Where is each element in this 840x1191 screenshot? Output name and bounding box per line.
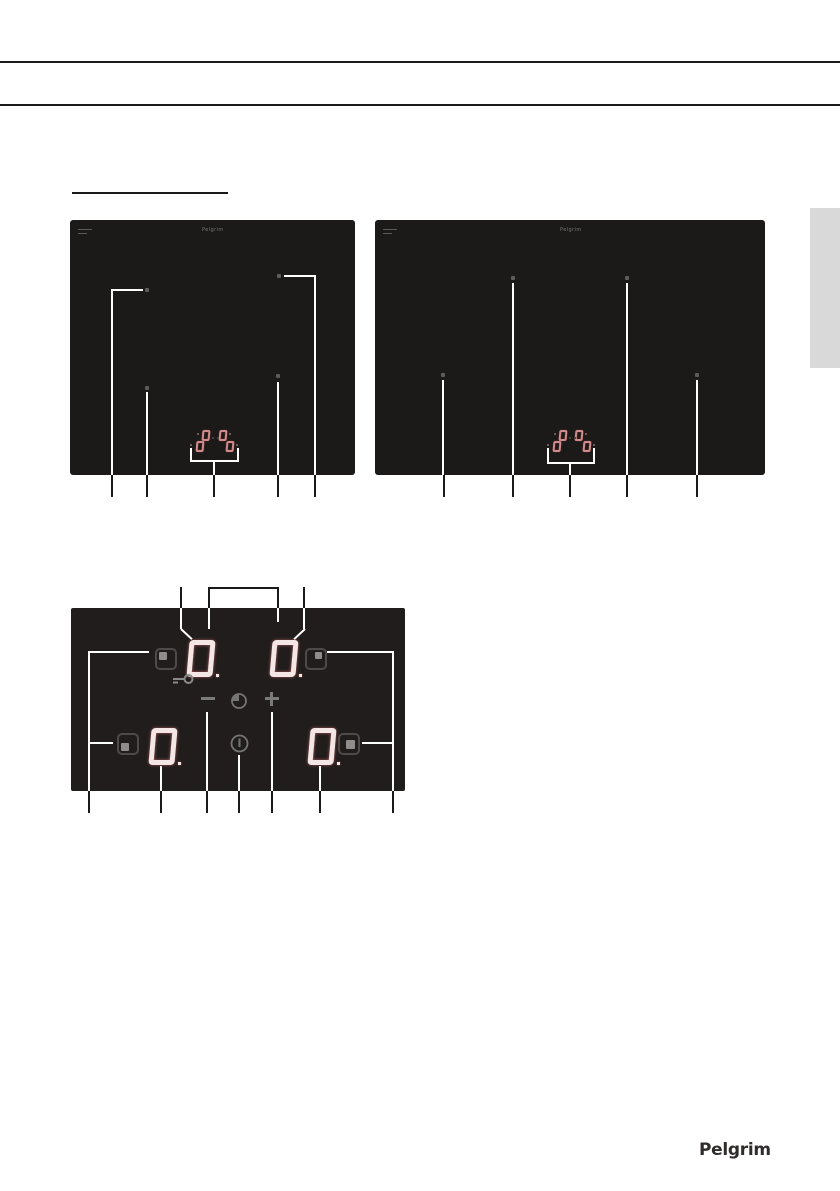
callout-line (327, 651, 394, 653)
callout-bracket (208, 587, 279, 589)
callout-bracket (277, 587, 279, 608)
digit-value: 0 (204, 432, 205, 433)
brand-logo: Pelgrim (699, 1140, 771, 1160)
callout-line (277, 382, 279, 475)
callout-bracket (213, 460, 215, 475)
model-label-mark (78, 229, 92, 230)
digit-value: 0 (221, 432, 222, 433)
callout-line (314, 275, 316, 475)
callout-bracket (593, 448, 595, 462)
callout-line (392, 791, 394, 813)
display-back-right: 0 (269, 640, 298, 677)
mini-display-digit: 0 (196, 441, 205, 452)
hob-figure-right: Pelgrim 0 0 0 0 (375, 220, 765, 475)
zone-position-square (346, 740, 355, 749)
decimal-point (216, 674, 219, 677)
callout-line (238, 791, 240, 813)
callout-line (443, 475, 445, 497)
callout-bracket (547, 448, 549, 462)
callout-line (160, 766, 162, 791)
zone-marker-dot (145, 386, 149, 390)
callout-line (206, 791, 208, 813)
mini-display-mark (212, 437, 214, 439)
zone-marker-dot (277, 274, 281, 278)
mini-display-mark (585, 433, 587, 435)
zone-select-back-left-key-icon (155, 648, 177, 670)
hob-figure-left: Pelgrim 0 0 0 0 (70, 220, 355, 475)
callout-line (277, 475, 279, 497)
callout-bracket (208, 608, 210, 629)
mini-display-mark (229, 433, 231, 435)
decimal-point (299, 674, 302, 677)
mini-display-mark (574, 437, 576, 439)
callout-line (111, 289, 113, 475)
callout-line (512, 283, 514, 475)
control-panel-figure: 0 0 0 0 (71, 608, 405, 791)
callout-line (180, 587, 182, 608)
callout-line (206, 712, 208, 791)
digit-value: 0 (228, 443, 229, 444)
child-lock-key-icon (171, 672, 195, 686)
mini-display-mark (217, 437, 219, 439)
hob-brand-text: Pelgrim (202, 227, 224, 233)
digit-value: 0 (555, 443, 556, 444)
callout-line (293, 628, 305, 640)
zone-select-front-right-key-icon (338, 733, 360, 755)
callout-line (314, 475, 316, 497)
manual-page: { "colors": { "rule": "#1a1a1a", "callou… (0, 0, 840, 1191)
model-label-mark (78, 233, 87, 234)
callout-line (146, 475, 148, 497)
callout-line (213, 475, 215, 497)
callout-line (569, 475, 571, 497)
zone-marker-dot (441, 373, 445, 377)
callout-line (111, 289, 143, 291)
callout-line (319, 766, 321, 791)
mini-display-digit: 0 (219, 430, 228, 441)
callout-bracket (569, 462, 571, 475)
mini-display-digit: 0 (553, 441, 562, 452)
zone-position-square (121, 743, 129, 751)
mini-display-mark (236, 444, 238, 446)
callout-line (626, 475, 628, 497)
callout-line (88, 742, 113, 744)
timer-key-icon (230, 692, 248, 710)
callout-line (88, 651, 90, 791)
callout-line (319, 791, 321, 813)
callout-line (303, 608, 305, 629)
callout-line (180, 608, 182, 629)
power-key-icon (230, 734, 249, 753)
callout-line (696, 380, 698, 475)
callout-line (146, 392, 148, 475)
page-edge-tab (810, 208, 840, 368)
decimal-point (178, 762, 181, 765)
mini-display-digit: 0 (575, 430, 584, 441)
mini-display-digit: 0 (226, 441, 235, 452)
model-label-mark (383, 229, 397, 230)
callout-line (111, 475, 113, 497)
callout-bracket (208, 587, 210, 608)
plus-key-icon (270, 692, 273, 706)
digit-value: 0 (585, 443, 586, 444)
callout-line (303, 587, 305, 608)
callout-line (180, 628, 192, 640)
mini-display-digit: 0 (559, 430, 568, 441)
zone-select-front-left-key-icon (117, 733, 139, 755)
callout-line (626, 283, 628, 475)
display-front-left: 0 (148, 728, 177, 765)
digit-value: 0 (194, 645, 195, 646)
zone-marker-dot (625, 276, 629, 280)
callout-line (362, 742, 394, 744)
callout-bracket (277, 608, 279, 622)
callout-line (238, 755, 240, 791)
mini-display-mark (197, 433, 199, 435)
digit-value: 0 (156, 733, 157, 734)
zone-select-back-right-key-icon (305, 648, 327, 670)
callout-line (160, 791, 162, 813)
digit-value: 0 (577, 432, 578, 433)
callout-line (512, 475, 514, 497)
callout-line (88, 651, 149, 653)
decimal-point (337, 762, 340, 765)
header-rule-bottom (0, 104, 840, 106)
mini-display-digit: 0 (202, 430, 211, 441)
zone-marker-dot (511, 276, 515, 280)
zone-position-square (159, 652, 167, 660)
digit-value: 0 (561, 432, 562, 433)
mini-display-mark (569, 437, 571, 439)
zone-marker-dot (695, 373, 699, 377)
digit-value: 0 (315, 733, 316, 734)
callout-line (392, 651, 394, 791)
callout-line (696, 475, 698, 497)
mini-display-mark (190, 444, 192, 446)
callout-line (88, 791, 90, 813)
hob-brand-text: Pelgrim (560, 227, 582, 233)
digit-value: 0 (198, 443, 199, 444)
mini-display-mark (554, 433, 556, 435)
minus-key-icon (201, 697, 215, 700)
header-rule-top (0, 61, 840, 63)
section-heading-underline (72, 192, 228, 194)
callout-bracket (547, 462, 595, 464)
mini-display-digit: 0 (583, 441, 592, 452)
callout-line (271, 791, 273, 813)
digit-value: 0 (277, 645, 278, 646)
mini-display-mark (547, 444, 549, 446)
zone-position-square (315, 652, 322, 659)
mini-display-mark (593, 444, 595, 446)
display-front-right: 0 (307, 728, 336, 765)
zone-marker-dot (145, 288, 149, 292)
callout-line (284, 275, 314, 277)
model-label-mark (383, 233, 392, 234)
zone-marker-dot (276, 374, 280, 378)
callout-line (271, 712, 273, 791)
callout-bracket (237, 448, 239, 462)
callout-line (442, 380, 444, 475)
